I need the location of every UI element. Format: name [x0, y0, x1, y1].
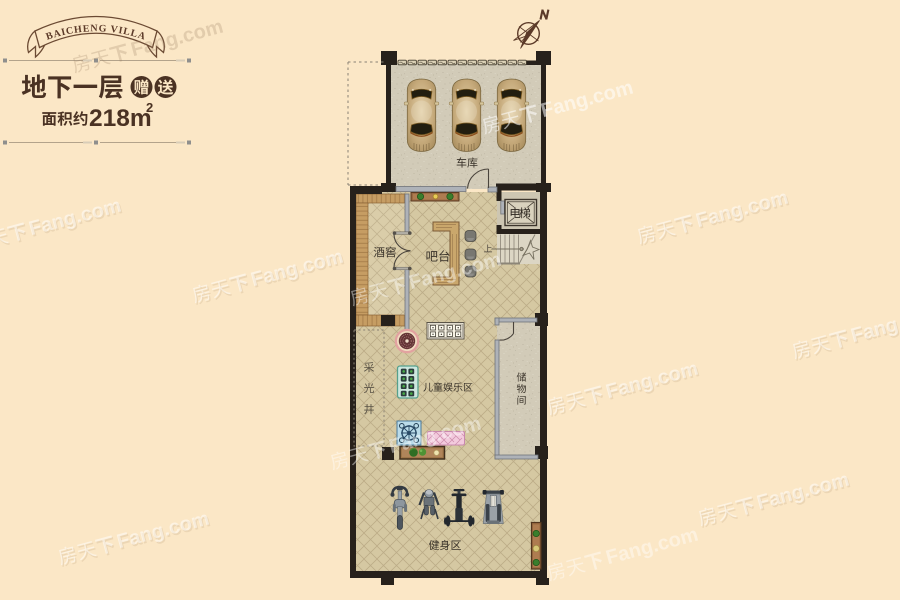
svg-text:2: 2 [146, 100, 153, 115]
svg-text:218m: 218m [89, 105, 152, 132]
